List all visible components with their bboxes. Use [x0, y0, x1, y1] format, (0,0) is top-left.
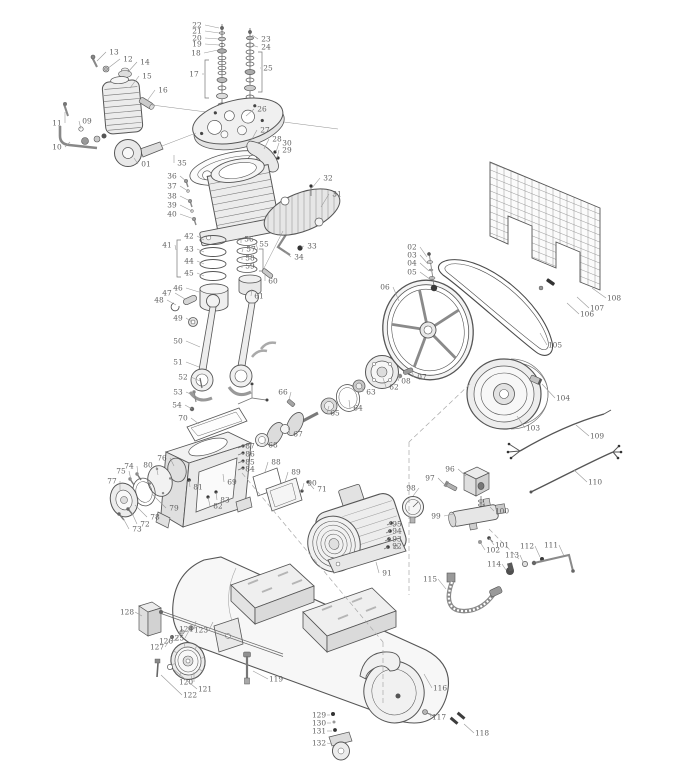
- caster-132: [329, 732, 352, 760]
- leader-line-55: [256, 244, 258, 250]
- bracket-55: [259, 249, 263, 271]
- part-label-22: 22: [192, 20, 201, 29]
- leader-line-41: [175, 245, 176, 250]
- part-label-46: 46: [173, 283, 183, 292]
- part-label-99: 99: [431, 511, 441, 520]
- part-label-33: 33: [307, 241, 317, 250]
- part-label-121: 121: [198, 684, 212, 693]
- part-label-107: 107: [590, 303, 604, 312]
- part-label-25: 25: [263, 63, 273, 72]
- leader-line-22: [205, 25, 219, 28]
- exploded-parts-diagram: 0102030405060708091011121314151617181920…: [0, 0, 686, 768]
- part-label-108: 108: [607, 293, 621, 302]
- ring-113: [522, 561, 527, 566]
- leader-line-104: [542, 384, 555, 398]
- part-label-86: 86: [245, 449, 255, 458]
- part-label-104: 104: [556, 393, 570, 402]
- part-label-42: 42: [184, 231, 193, 240]
- part-label-127: 127: [150, 642, 164, 651]
- part-label-31: 31: [332, 189, 341, 198]
- bracket-41: [177, 240, 181, 277]
- part-label-132: 132: [312, 738, 326, 747]
- part-label-68: 68: [268, 440, 278, 449]
- part-label-26: 26: [257, 104, 267, 113]
- pressure-gauge-98: [403, 497, 424, 524]
- part-label-74: 74: [124, 461, 134, 470]
- leader-line-32: [312, 178, 320, 188]
- leader-line-19: [205, 44, 219, 45]
- bolt-97: [444, 481, 458, 492]
- part-label-79: 79: [169, 503, 179, 512]
- leader-line-40: [180, 214, 194, 219]
- part-label-53: 53: [173, 387, 183, 396]
- part-label-38: 38: [167, 191, 177, 200]
- leader-line-21: [205, 31, 219, 33]
- part-label-119: 119: [269, 674, 283, 683]
- leader-line-12: [107, 59, 120, 69]
- wrist-pin-47: [182, 294, 197, 305]
- leader-line-89: [285, 472, 288, 482]
- leader-line-115: [438, 579, 446, 589]
- part-label-41: 41: [162, 240, 171, 249]
- part-label-17: 17: [189, 69, 199, 78]
- leader-line-132: [327, 743, 331, 744]
- part-label-18: 18: [191, 48, 201, 57]
- part-label-100: 100: [495, 506, 509, 515]
- part-label-83: 83: [220, 495, 230, 504]
- head-bolts-36-40: [184, 179, 196, 225]
- part-label-95: 95: [392, 519, 402, 528]
- leader-line-02: [420, 247, 427, 257]
- leader-line-16: [147, 90, 155, 101]
- part-label-131: 131: [312, 726, 326, 735]
- part-label-35: 35: [177, 158, 187, 167]
- part-label-28: 28: [272, 134, 282, 143]
- leader-line-111: [559, 545, 564, 556]
- part-label-118: 118: [475, 728, 489, 737]
- leader-line-57: [242, 249, 243, 252]
- part-label-73: 73: [132, 524, 142, 533]
- part-label-80: 80: [143, 460, 153, 469]
- screws-118: [450, 712, 466, 725]
- discharge-hose-115: [447, 573, 503, 611]
- leader-line-97: [438, 478, 446, 486]
- part-label-78: 78: [150, 512, 160, 521]
- part-label-70: 70: [178, 413, 188, 422]
- leader-line-66: [289, 392, 291, 400]
- leader-line-46: [186, 288, 199, 292]
- part-label-34: 34: [294, 252, 304, 261]
- belt-guard-108: [488, 160, 602, 322]
- leader-line-72: [132, 513, 137, 524]
- leader-line-101: [489, 538, 494, 545]
- part-label-65: 65: [330, 408, 340, 417]
- cylinder-head: [188, 90, 288, 157]
- leader-line-18: [204, 50, 218, 53]
- part-label-12: 12: [123, 54, 132, 63]
- part-label-16: 16: [158, 85, 168, 94]
- drain-valve-119: [244, 652, 251, 684]
- part-label-44: 44: [184, 256, 194, 265]
- leader-line-114: [502, 564, 506, 570]
- part-label-45: 45: [184, 268, 194, 277]
- part-label-98: 98: [406, 483, 416, 492]
- part-label-115: 115: [423, 574, 437, 583]
- leader-line-91: [376, 562, 379, 573]
- part-label-89: 89: [291, 467, 301, 476]
- part-label-97: 97: [425, 473, 435, 482]
- leader-line-14: [128, 62, 137, 72]
- part-label-11: 11: [52, 118, 61, 127]
- part-label-15: 15: [142, 71, 152, 80]
- part-label-54: 54: [172, 400, 182, 409]
- leader-line-13: [97, 52, 106, 61]
- part-label-09: 09: [82, 116, 92, 125]
- bracket-17: [205, 60, 209, 98]
- part-label-07: 07: [417, 372, 427, 381]
- part-label-48: 48: [154, 295, 164, 304]
- pin-bushing-49: [189, 318, 198, 327]
- part-label-67: 67: [293, 429, 303, 438]
- part-label-51: 51: [173, 357, 182, 366]
- part-label-01: 01: [141, 159, 150, 168]
- part-label-110: 110: [588, 477, 602, 486]
- part-label-49: 49: [173, 313, 183, 322]
- part-label-113: 113: [505, 550, 519, 559]
- part-label-08: 08: [401, 376, 411, 385]
- part-label-50: 50: [173, 336, 183, 345]
- leader-line-36: [180, 176, 186, 181]
- leader-line-64: [349, 400, 350, 408]
- part-label-71: 71: [317, 484, 326, 493]
- part-label-96: 96: [445, 464, 455, 473]
- part-label-85: 85: [245, 457, 255, 466]
- part-label-06: 06: [380, 282, 390, 291]
- leader-line-39: [180, 205, 192, 211]
- part-label-123: 123: [194, 625, 208, 634]
- part-label-103: 103: [526, 423, 540, 432]
- part-label-77: 77: [107, 476, 117, 485]
- part-label-37: 37: [167, 181, 177, 190]
- part-label-122: 122: [183, 690, 197, 699]
- part-label-116: 116: [433, 683, 447, 692]
- bracket-25: [258, 52, 262, 92]
- part-label-61: 61: [254, 291, 263, 300]
- aftercooler-tank: [101, 75, 143, 135]
- leader-line-37: [180, 186, 188, 191]
- part-label-93: 93: [392, 534, 402, 543]
- part-label-109: 109: [590, 431, 604, 440]
- leader-line-50: [186, 341, 200, 347]
- part-label-102: 102: [486, 545, 500, 554]
- axle-128-bracket: [139, 602, 161, 636]
- part-label-47: 47: [162, 288, 172, 297]
- leader-line-51: [186, 362, 199, 367]
- caster-bolts-129-131: [331, 712, 337, 732]
- part-label-76: 76: [157, 453, 167, 462]
- leader-line-70: [191, 418, 199, 424]
- leader-line-20: [205, 38, 219, 39]
- part-label-10: 10: [52, 142, 62, 151]
- leader-line-38: [180, 196, 190, 201]
- leader-line-04: [420, 263, 429, 271]
- part-label-69: 69: [227, 477, 237, 486]
- leader-line-47: [175, 293, 185, 299]
- part-label-124: 124: [179, 624, 193, 633]
- part-label-87: 87: [245, 441, 255, 450]
- part-label-81: 81: [193, 482, 202, 491]
- side-cover-plates-88-89: [253, 468, 310, 511]
- part-label-52: 52: [178, 372, 187, 381]
- part-label-57: 57: [246, 244, 256, 253]
- leader-line-88: [265, 462, 268, 472]
- part-label-72: 72: [140, 519, 149, 528]
- leader-line-109: [576, 425, 589, 436]
- unloader-tube-111: [532, 555, 575, 573]
- leader-line-113: [520, 555, 523, 562]
- part-label-60: 60: [268, 276, 278, 285]
- elbow-114: [506, 562, 514, 575]
- leader-line-110: [574, 470, 587, 482]
- wheel-bolt-121-122: [155, 659, 173, 677]
- part-label-39: 39: [167, 200, 177, 209]
- part-label-128: 128: [120, 607, 134, 616]
- leader-line-54: [185, 405, 192, 409]
- part-label-40: 40: [167, 209, 177, 218]
- part-label-62: 62: [389, 382, 398, 391]
- wire-110: [530, 445, 623, 494]
- part-label-43: 43: [184, 244, 194, 253]
- part-label-64: 64: [353, 403, 363, 412]
- part-label-120: 120: [179, 677, 193, 686]
- part-label-13: 13: [109, 47, 119, 56]
- pulley-103: [467, 359, 548, 429]
- part-label-75: 75: [116, 466, 126, 475]
- part-label-112: 112: [520, 541, 534, 550]
- part-label-05: 05: [407, 267, 417, 276]
- part-label-117: 117: [432, 712, 446, 721]
- part-label-32: 32: [323, 173, 332, 182]
- part-label-63: 63: [366, 387, 376, 396]
- leader-line-118: [464, 724, 474, 733]
- part-label-105: 105: [548, 340, 562, 349]
- part-label-24: 24: [261, 42, 271, 51]
- part-label-111: 111: [544, 540, 558, 549]
- part-label-36: 36: [167, 171, 177, 180]
- leader-line-119: [253, 671, 268, 679]
- part-label-88: 88: [271, 457, 281, 466]
- part-label-30: 30: [282, 138, 292, 147]
- leader-line-102: [480, 542, 485, 550]
- leader-line-106: [567, 303, 579, 314]
- leader-line-107: [577, 297, 589, 308]
- leader-line-73: [123, 518, 129, 529]
- part-label-56: 56: [244, 234, 254, 243]
- part-label-66: 66: [278, 387, 288, 396]
- leader-line-05: [420, 272, 431, 280]
- part-label-14: 14: [140, 57, 150, 66]
- part-label-90: 90: [307, 478, 317, 487]
- part-label-114: 114: [487, 559, 501, 568]
- leader-line-112: [535, 546, 540, 557]
- part-label-27: 27: [260, 125, 270, 134]
- part-label-59: 59: [245, 261, 255, 270]
- part-label-04: 04: [407, 258, 417, 267]
- part-label-55: 55: [259, 239, 269, 248]
- part-label-91: 91: [382, 568, 391, 577]
- leader-line-78: [135, 505, 147, 517]
